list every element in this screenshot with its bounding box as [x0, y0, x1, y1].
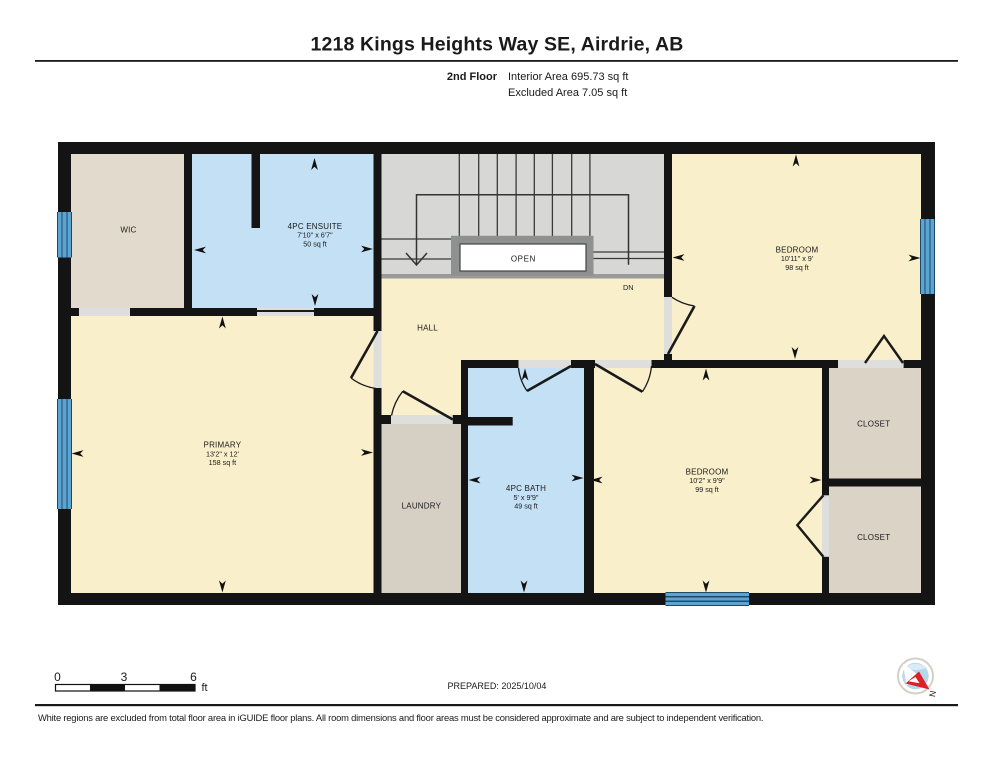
svg-text:LAUNDRY: LAUNDRY	[402, 501, 442, 510]
svg-text:HALL: HALL	[417, 323, 438, 332]
svg-text:3: 3	[121, 670, 128, 684]
svg-text:50 sq ft: 50 sq ft	[303, 239, 327, 248]
svg-text:1218 Kings Heights Way SE, Air: 1218 Kings Heights Way SE, Airdrie, AB	[310, 34, 683, 56]
svg-text:0: 0	[54, 670, 61, 684]
svg-text:7'10" x 6'7": 7'10" x 6'7"	[297, 231, 333, 240]
svg-text:4PC BATH: 4PC BATH	[506, 484, 546, 493]
svg-text:10'2" x 9'9": 10'2" x 9'9"	[689, 476, 725, 485]
svg-text:BEDROOM: BEDROOM	[776, 246, 819, 255]
svg-text:98 sq ft: 98 sq ft	[785, 263, 809, 272]
svg-text:White regions are excluded fro: White regions are excluded from total fl…	[38, 712, 763, 723]
svg-text:4PC ENSUITE: 4PC ENSUITE	[288, 222, 343, 231]
svg-text:CLOSET: CLOSET	[857, 533, 890, 542]
svg-text:158 sq ft: 158 sq ft	[209, 458, 237, 467]
svg-text:10'11" x 9': 10'11" x 9'	[781, 254, 814, 263]
svg-text:99 sq ft: 99 sq ft	[695, 485, 719, 494]
svg-text:CLOSET: CLOSET	[857, 419, 890, 428]
svg-text:PREPARED: 2025/10/04: PREPARED: 2025/10/04	[448, 681, 547, 691]
svg-text:49 sq ft: 49 sq ft	[514, 502, 538, 511]
svg-text:WIC: WIC	[120, 226, 136, 235]
svg-text:2nd Floor: 2nd Floor	[447, 71, 498, 83]
svg-text:13'2" x 12': 13'2" x 12'	[206, 449, 239, 458]
svg-text:BEDROOM: BEDROOM	[686, 468, 729, 477]
svg-text:Excluded Area 7.05 sq ft: Excluded Area 7.05 sq ft	[508, 87, 627, 99]
svg-text:6: 6	[190, 670, 197, 684]
svg-text:PRIMARY: PRIMARY	[204, 441, 242, 450]
svg-text:OPEN: OPEN	[511, 255, 536, 264]
svg-text:DN: DN	[623, 283, 634, 292]
svg-text:5' x 9'9": 5' x 9'9"	[514, 493, 539, 502]
svg-text:ft: ft	[202, 682, 208, 694]
svg-text:Interior Area 695.73 sq ft: Interior Area 695.73 sq ft	[508, 71, 628, 83]
